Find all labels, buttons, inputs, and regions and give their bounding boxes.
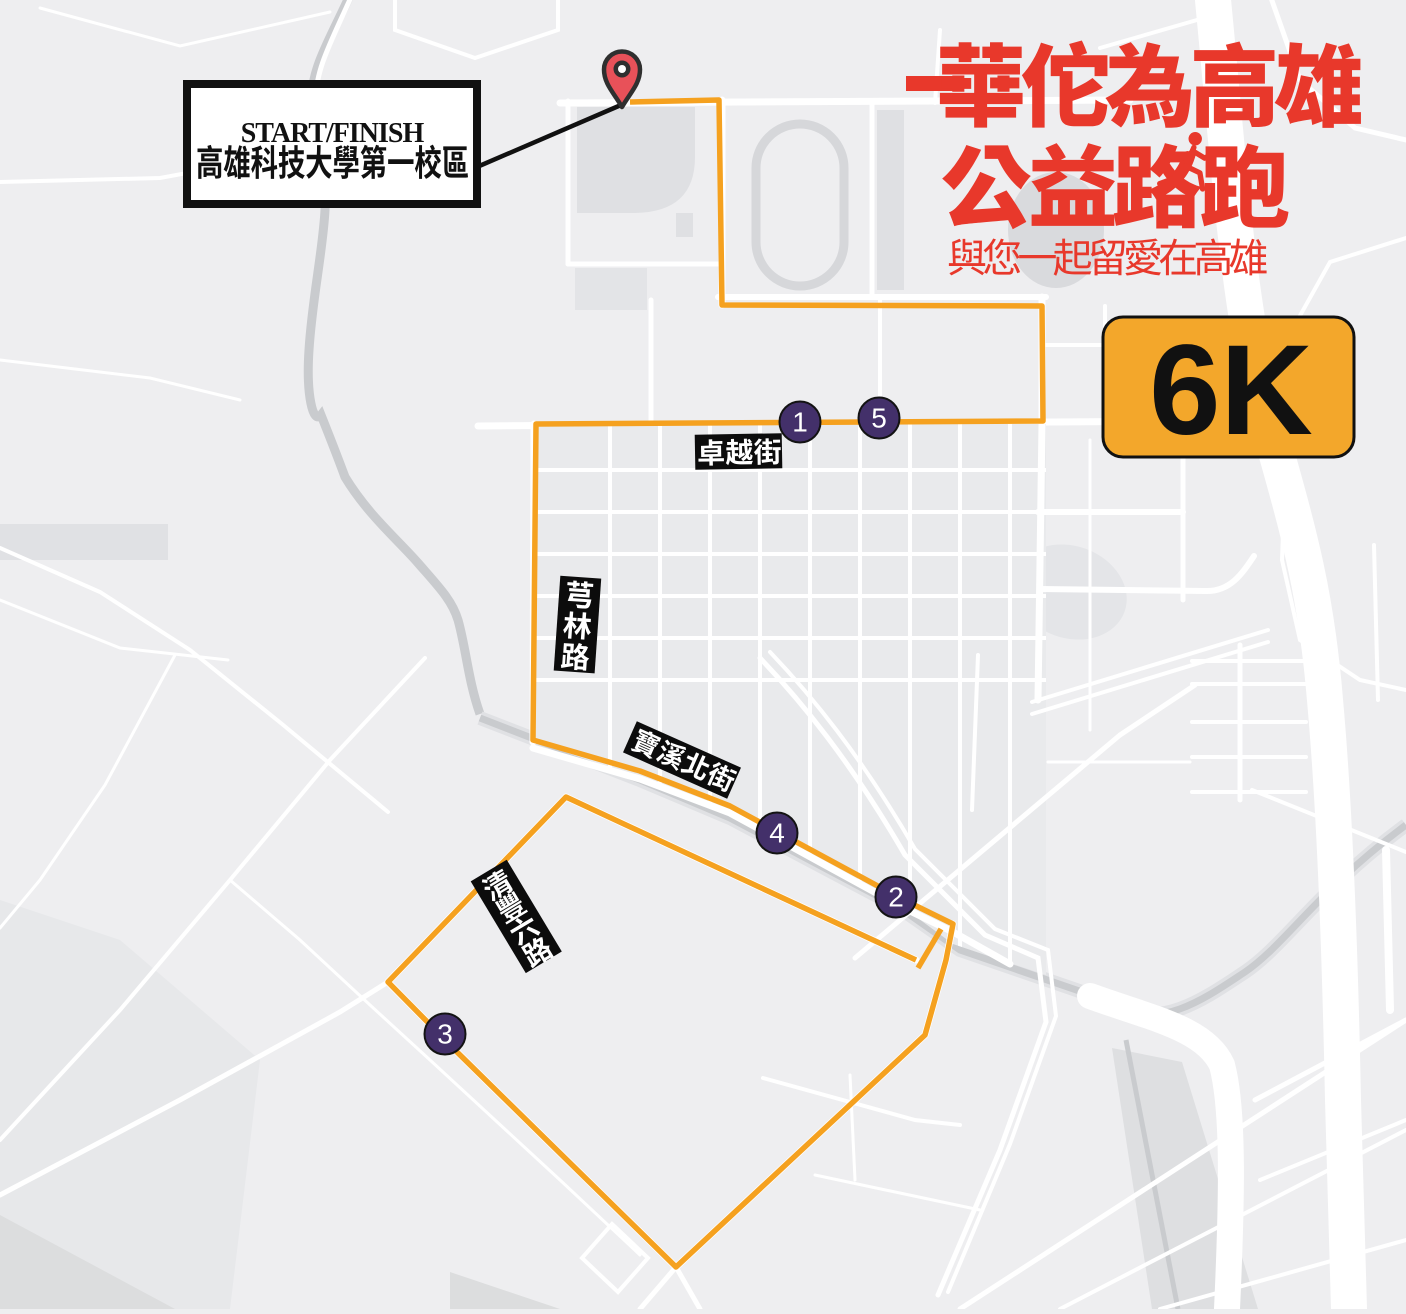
svg-text:5: 5 <box>871 403 887 434</box>
svg-text:1: 1 <box>792 407 808 438</box>
svg-text:6K: 6K <box>1149 319 1313 462</box>
svg-text:2: 2 <box>888 882 904 913</box>
svg-text:4: 4 <box>769 818 785 849</box>
svg-text:START/FINISH: START/FINISH <box>241 118 425 149</box>
svg-text:3: 3 <box>437 1019 453 1050</box>
